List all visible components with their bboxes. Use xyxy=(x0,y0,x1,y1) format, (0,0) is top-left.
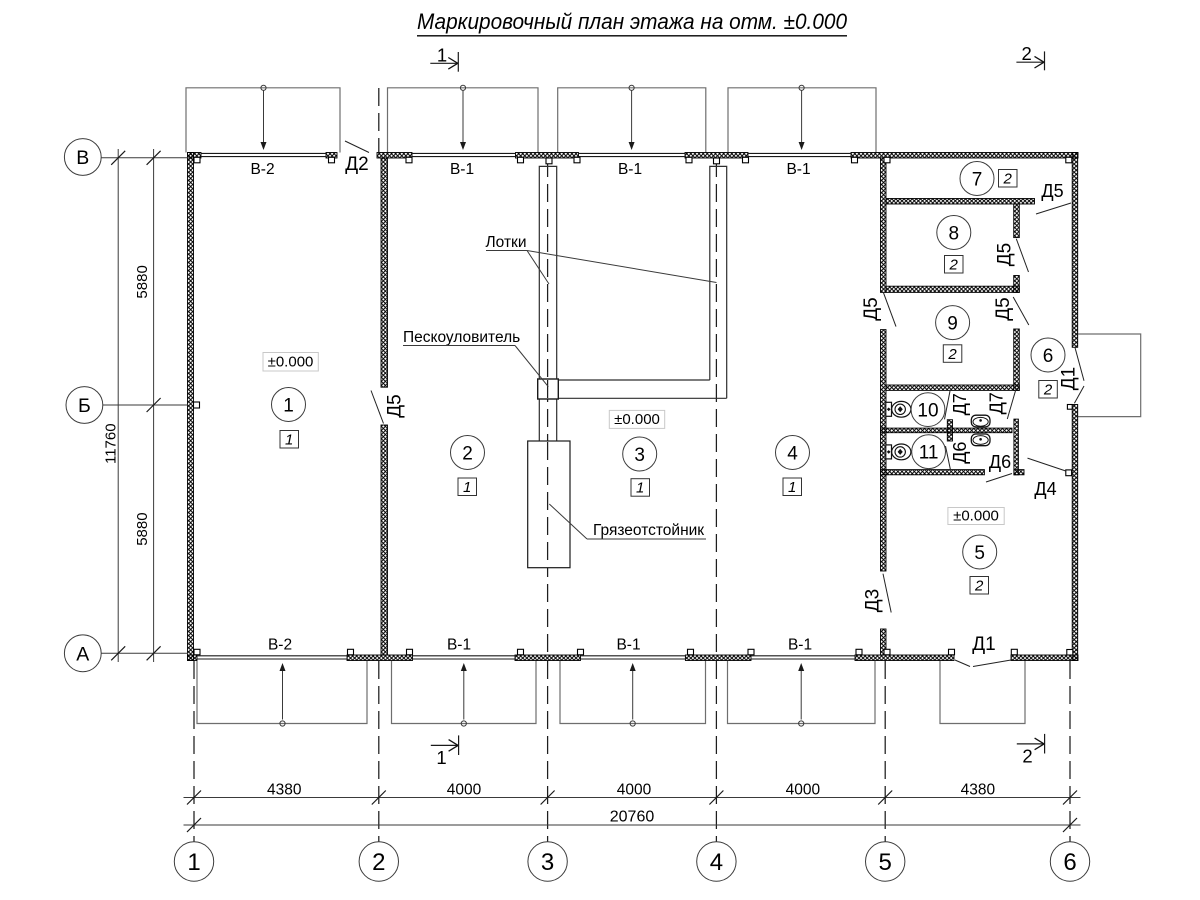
svg-text:А: А xyxy=(76,644,89,666)
svg-text:4000: 4000 xyxy=(617,782,652,799)
svg-text:Д5: Д5 xyxy=(861,297,882,320)
svg-text:Д7: Д7 xyxy=(950,393,970,415)
svg-text:20760: 20760 xyxy=(610,809,655,826)
svg-text:2: 2 xyxy=(1022,746,1032,767)
svg-text:Д7: Д7 xyxy=(986,392,1006,414)
svg-text:В-1: В-1 xyxy=(616,637,640,654)
svg-text:Д1: Д1 xyxy=(972,634,995,655)
svg-text:11760: 11760 xyxy=(103,423,120,464)
svg-text:Д4: Д4 xyxy=(1034,479,1056,499)
svg-text:Лотки: Лотки xyxy=(486,234,527,251)
svg-text:1: 1 xyxy=(285,432,293,449)
svg-text:Д6: Д6 xyxy=(989,452,1011,472)
svg-text:7: 7 xyxy=(972,169,983,190)
svg-text:В-2: В-2 xyxy=(268,637,292,654)
svg-text:В-1: В-1 xyxy=(447,637,471,654)
svg-text:Д2: Д2 xyxy=(345,154,368,175)
svg-text:Пескоуловитель: Пескоуловитель xyxy=(403,329,520,346)
svg-text:3: 3 xyxy=(541,849,554,876)
svg-text:5: 5 xyxy=(879,849,892,876)
svg-text:3: 3 xyxy=(634,445,645,466)
svg-text:2: 2 xyxy=(947,346,957,363)
svg-text:8: 8 xyxy=(949,223,960,244)
svg-text:2: 2 xyxy=(372,849,385,876)
svg-text:1: 1 xyxy=(463,479,471,496)
svg-text:2: 2 xyxy=(1043,382,1053,399)
svg-text:2: 2 xyxy=(949,257,959,274)
svg-text:5880: 5880 xyxy=(134,265,151,298)
svg-text:4380: 4380 xyxy=(961,782,996,799)
svg-text:2: 2 xyxy=(974,578,984,595)
svg-text:Грязеотстойник: Грязеотстойник xyxy=(593,522,704,539)
svg-text:4: 4 xyxy=(787,443,798,464)
svg-text:В: В xyxy=(76,147,89,169)
svg-text:Д3: Д3 xyxy=(863,589,884,612)
svg-text:В-2: В-2 xyxy=(250,161,274,178)
svg-text:1: 1 xyxy=(636,480,644,497)
svg-text:±0.000: ±0.000 xyxy=(614,411,660,428)
svg-text:2: 2 xyxy=(1022,43,1032,64)
svg-text:5: 5 xyxy=(974,543,985,564)
svg-text:Д1: Д1 xyxy=(1059,367,1080,390)
svg-text:В-1: В-1 xyxy=(786,161,810,178)
svg-text:1: 1 xyxy=(187,849,200,876)
svg-text:6: 6 xyxy=(1063,849,1076,876)
svg-text:1: 1 xyxy=(283,395,294,416)
svg-text:1: 1 xyxy=(437,44,447,65)
svg-text:Б: Б xyxy=(78,395,91,417)
svg-text:В-1: В-1 xyxy=(618,161,642,178)
svg-text:1: 1 xyxy=(788,479,796,496)
svg-text:±0.000: ±0.000 xyxy=(268,354,314,371)
svg-text:5880: 5880 xyxy=(134,512,151,545)
svg-text:4380: 4380 xyxy=(267,782,302,799)
svg-text:В-1: В-1 xyxy=(788,637,812,654)
svg-text:Д5: Д5 xyxy=(995,243,1016,266)
svg-text:1: 1 xyxy=(436,747,446,768)
svg-text:Маркировочный план этажа на от: Маркировочный план этажа на отм. ±0.000 xyxy=(417,9,847,34)
svg-text:В-1: В-1 xyxy=(450,161,474,178)
svg-text:Д6: Д6 xyxy=(950,442,970,464)
svg-text:10: 10 xyxy=(917,400,938,421)
svg-text:2: 2 xyxy=(462,443,473,464)
svg-text:Д5: Д5 xyxy=(385,394,406,417)
svg-text:4000: 4000 xyxy=(447,782,482,799)
svg-text:2: 2 xyxy=(1003,171,1013,188)
svg-text:6: 6 xyxy=(1043,346,1054,367)
svg-text:Д5: Д5 xyxy=(1041,181,1063,201)
svg-text:±0.000: ±0.000 xyxy=(953,508,999,525)
svg-text:9: 9 xyxy=(947,313,958,334)
svg-text:4: 4 xyxy=(710,849,723,876)
svg-text:11: 11 xyxy=(919,443,939,464)
svg-text:4000: 4000 xyxy=(786,782,821,799)
svg-text:Д5: Д5 xyxy=(993,297,1014,320)
